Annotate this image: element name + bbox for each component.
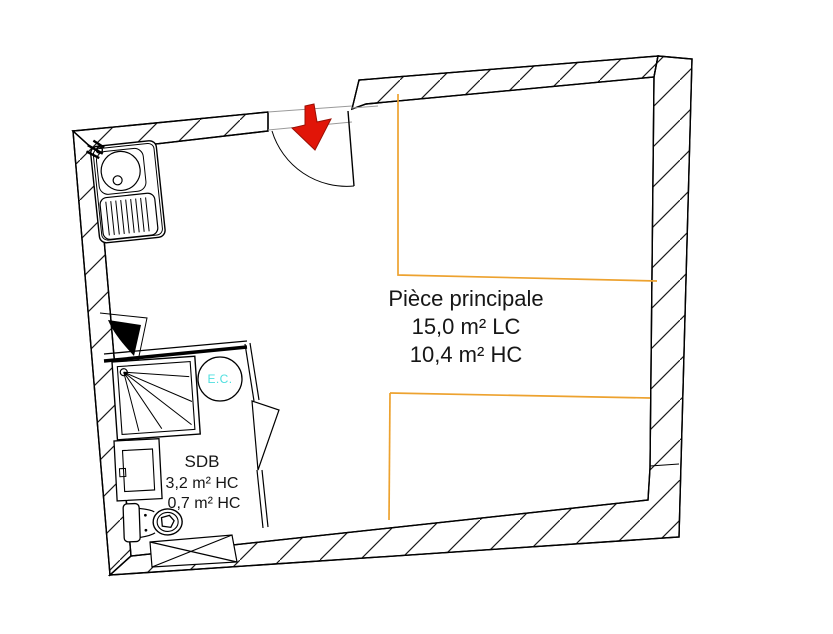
entrance-arrow-icon	[292, 104, 331, 150]
washbasin-outer	[114, 439, 162, 501]
water-heater: E.C.	[198, 357, 242, 401]
zone-boundary-upper	[398, 94, 657, 281]
main-room-area-hc: 10,4 m² HC	[410, 342, 523, 367]
bathroom-name: SDB	[185, 452, 220, 471]
bathroom-partition	[245, 343, 279, 528]
toilet-tank	[123, 503, 140, 542]
toilet-dot-bottom	[144, 529, 147, 532]
floor-plan-page: E.C. Pièce principale 15,0 m² LC 10,4 m²…	[0, 0, 833, 634]
zone-boundary-lower-h	[390, 393, 650, 398]
zone-boundary-lower-v	[389, 393, 390, 520]
duct-box	[150, 535, 237, 567]
main-room-area-lc: 15,0 m² LC	[412, 314, 521, 339]
bathroom-area-1: 3,2 m² HC	[166, 475, 239, 492]
bathroom-door-swing-wedge	[252, 401, 279, 470]
floor-plan-svg: E.C. Pièce principale 15,0 m² LC 10,4 m²…	[0, 0, 833, 634]
main-room-name: Pièce principale	[388, 286, 543, 311]
water-heater-label: E.C.	[208, 372, 233, 386]
washbasin	[114, 439, 162, 501]
walls	[73, 56, 692, 575]
shower	[112, 356, 200, 440]
bathroom-area-2: 0,7 m² HC	[168, 495, 241, 512]
entrance-door	[268, 106, 378, 186]
toilet-dot-top	[144, 514, 147, 517]
